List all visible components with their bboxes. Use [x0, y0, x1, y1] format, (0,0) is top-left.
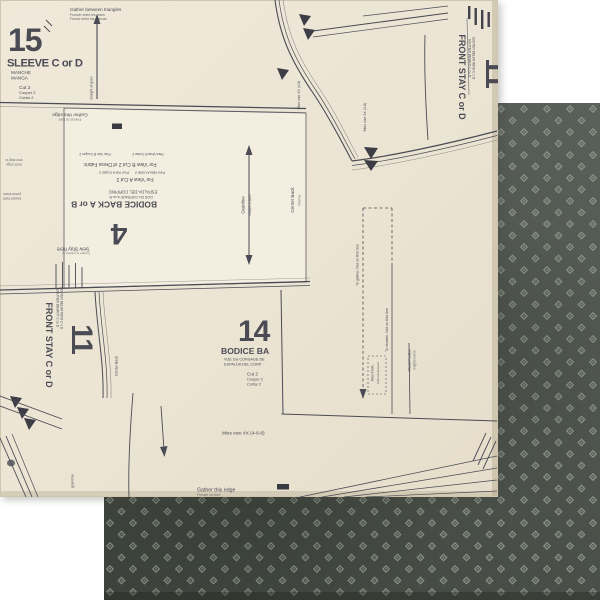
- edge-frag-3: press seam: [3, 192, 21, 196]
- grainline-label: Grainline: [241, 196, 246, 214]
- bodice-front-es: ESPALDA DEL CORP: [224, 363, 262, 367]
- cut-note-es: Cortar 2: [19, 95, 34, 100]
- front-paper-art: Gather between triangles Froncer entre l…: [0, 0, 498, 497]
- edge-frag-2: neck edge: [6, 163, 22, 167]
- sleeve-fr: MANCHE: [11, 70, 31, 75]
- bodice-front-fr: VUE DU CORSAGE DE: [224, 358, 265, 362]
- petite-note-1: Miss Petite: [371, 365, 375, 381]
- view-b-fr: Pour Vue B Couper 2: [79, 152, 110, 156]
- straight-grain-note: straight of grain: [90, 76, 94, 99]
- fold-shorten-note: To shorten, fold on this line: [385, 308, 389, 352]
- front-stay-left-es: SOSTEN DELANTERO C o D: [60, 287, 64, 330]
- scrapbook-paper-product-photo: Gather between triangles Froncer entre l…: [0, 0, 600, 600]
- ink-blot: [7, 460, 15, 467]
- piece-number-14: 14: [238, 315, 271, 348]
- cut-note-14-es: Cortar 2: [247, 382, 261, 387]
- gather-edge-bottom-fr: Froncer ce bord: [197, 493, 220, 497]
- piece-number-15: 15: [8, 22, 42, 58]
- view-a-es: Para Vista A Cortar 2: [135, 171, 165, 175]
- bodice-back-es: ESPALDA DEL CORPINO: [108, 190, 157, 195]
- front-stay-left-fr: SOUTIEN DEVANT C ou D: [56, 289, 60, 328]
- view-b-note: For View B Cut 2 of Dress Fabric: [83, 161, 156, 167]
- bodice-back-fr: DOS DU CORSAGE A ou B: [109, 195, 153, 199]
- piece-name-bodice-back: BODICE BACK A or B: [71, 200, 157, 210]
- gather-note: Gather between triangles: [70, 7, 122, 12]
- front-paper-sewing-pattern: Gather between triangles Froncer entre l…: [0, 0, 498, 497]
- view-a-fr: Pour Vue A Couper 2: [99, 171, 129, 175]
- piece-name-bodice-front: BODICE BA: [221, 346, 269, 356]
- piece-number-4: 4: [110, 217, 127, 250]
- piece-number-11-left: 11: [65, 324, 98, 354]
- gather-edge-note: Gather this edge: [52, 112, 88, 118]
- center-back-label: Center Back: [290, 187, 295, 213]
- front-stay-top-fr: SOUTIEN DEVANT C ou D: [468, 39, 472, 78]
- center-back-small: Center Back: [115, 356, 119, 376]
- bodice-back-panel: [64, 108, 306, 288]
- petite-note-2: fold out amount: [376, 362, 380, 383]
- waist-note-1: Waist Position: [408, 349, 412, 372]
- waist-note-2: lengthen here: [413, 350, 417, 370]
- gather-edge-fr: Froncer ce bord: [59, 118, 82, 122]
- fold-gather-note: To gather, fold on this line: [356, 244, 360, 286]
- gather-note-es: Frunce entre las marcas: [70, 17, 107, 21]
- bottom-edge-shade: [104, 592, 600, 600]
- front-stay-top-es: SOSTEN DELANTERO C o D: [472, 37, 476, 80]
- edge-frag-1: sew stay to: [5, 158, 22, 162]
- size-note-vertical-2: Miss size 4X (4-6): [363, 103, 367, 132]
- center-back-sub: fold line: [298, 194, 302, 205]
- size-range-note: Miss size 4X (4-6-8): [222, 431, 265, 437]
- sew-stay-fr: Coudre le soutien ici: [62, 252, 90, 256]
- view-b-es: Para Vista B Cortar 2: [132, 152, 163, 156]
- notch-block: [277, 484, 289, 490]
- piece-name-sleeve: SLEEVE C or D: [7, 58, 83, 70]
- grainline-sub: straight of grain: [248, 194, 252, 216]
- grainline-bottom: grainline: [71, 474, 75, 488]
- notch-block: [112, 124, 122, 130]
- edge-frag-4: toward back: [3, 197, 22, 201]
- size-note-vertical: Miss size 4X (4-6): [297, 81, 301, 110]
- view-a-note: For View A Cut 2: [116, 176, 153, 182]
- sleeve-es: MANGA: [11, 76, 29, 81]
- sew-stay-note: Sew Stay here: [57, 246, 90, 252]
- piece-number-11-top: 11: [479, 58, 498, 88]
- piece-name-front-stay-top: FRONT STAY C or D: [457, 34, 467, 120]
- piece-name-front-stay-left: FRONT STAY C or D: [44, 302, 54, 388]
